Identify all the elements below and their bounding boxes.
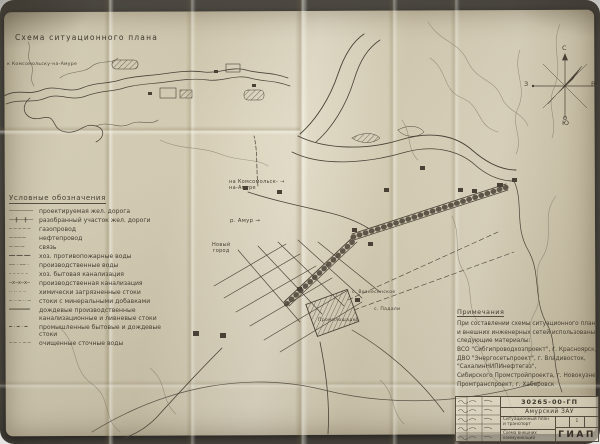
legend-symbol: ─·─·─·─ bbox=[9, 235, 39, 242]
legend-item: ·· ·· ·· ··химически загрязненные стоки bbox=[9, 289, 167, 296]
stage-sheet-cells: 1 bbox=[556, 417, 598, 428]
compass-rose bbox=[532, 54, 598, 120]
legend-label: химически загрязненные стоки bbox=[39, 289, 141, 296]
notes-block: Примечания При составлении схемы ситуаци… bbox=[457, 299, 597, 390]
legend-item: ─x─x─x─производственная канализация bbox=[9, 280, 167, 287]
inset-route-label: к Комсомольску-на-Амуре bbox=[7, 62, 77, 67]
legend-item: ─··─··─связь bbox=[9, 244, 167, 251]
signature-squiggles bbox=[456, 397, 500, 441]
organization-name: ГИАП bbox=[556, 428, 598, 441]
signature-grid bbox=[456, 397, 501, 441]
legend-symbol: ─··─··─ bbox=[9, 244, 39, 251]
legend-symbol: ── · ── · bbox=[9, 262, 39, 269]
legend-item: ─ ─ ─ ─ ─газопровод bbox=[9, 226, 167, 233]
notes-line: Промтранспроект, г. Хабаровск bbox=[457, 381, 597, 390]
legend-symbol: ─ ─ ─ ─ ─ bbox=[9, 226, 39, 233]
sheet-title: Ситуационный план и транспорт bbox=[501, 417, 555, 428]
legend-label: газопровод bbox=[39, 226, 76, 233]
legend-label: промышленные бытовые и дождевые стоки bbox=[39, 324, 167, 339]
plant-site-label: Промплощадка bbox=[318, 318, 359, 323]
legend-item: – – – – –хоз. бытовая канализация bbox=[9, 271, 167, 278]
legend-title: Условные обозначения bbox=[9, 194, 106, 204]
document-number: 30265-00-ГП bbox=[501, 397, 598, 408]
legend-label: производственная канализация bbox=[39, 280, 143, 287]
legend-label: стоки с минеральными добавками bbox=[39, 298, 150, 305]
notes-line: При составлении схемы ситуационного план… bbox=[457, 320, 597, 329]
project-name: Амурский ЗАУ bbox=[501, 408, 598, 417]
notes-line: следующие материалы: bbox=[457, 337, 597, 346]
inset-map-title: Схема ситуационного плана bbox=[15, 33, 158, 42]
legend-label: хоз. противопожарные воды bbox=[39, 253, 132, 260]
legend-symbol: – – – – – bbox=[9, 271, 39, 278]
legend-symbol: ─ ─ ·· ─ ─ bbox=[9, 340, 39, 347]
compass-east-label: В bbox=[591, 80, 595, 88]
legend-symbol: ·· ·· ·· ·· bbox=[9, 289, 39, 296]
river-label-text: р. Амур bbox=[230, 218, 253, 224]
sheet-number-cell: 1 bbox=[570, 417, 584, 427]
legend-item: ─ ·· ─ ·· ─стоки с минеральными добавкам… bbox=[9, 298, 167, 305]
sheet-subtitle: Схема внешних коммуникаций bbox=[501, 429, 555, 441]
legend-label: хоз. бытовая канализация bbox=[39, 271, 124, 278]
legend-label: очищенные сточные воды bbox=[39, 340, 123, 347]
city-label-line2: город bbox=[213, 248, 230, 254]
notes-line: ВСО "Сибгипроводхозпроект", г. Красноярс… bbox=[457, 346, 597, 355]
notes-line: Сибирского Промстройпроекта, г. Новокузн… bbox=[457, 372, 597, 381]
legend-symbol: ──╫──╫── bbox=[9, 217, 39, 224]
legend-item: ─ ─ ·· ─ ─очищенные сточные воды bbox=[9, 340, 167, 347]
notes-line: ДВО "Энергосетьпроект", г. Владивосток, bbox=[457, 355, 597, 364]
legend-label: проектируемая жел. дорога bbox=[39, 208, 130, 215]
arrow-right-icon: → bbox=[255, 218, 260, 224]
legend-symbol: ──────── bbox=[9, 208, 39, 215]
stage-cell bbox=[556, 417, 570, 427]
legend-label: дождевые производственные канализационны… bbox=[39, 307, 167, 322]
legend-label: разобранный участок жел. дороги bbox=[39, 217, 151, 224]
river-amur-label: р. Амур → bbox=[230, 218, 260, 224]
legend-symbol: ━━ ━━ ━━ bbox=[9, 253, 39, 260]
notes-title: Примечания bbox=[457, 308, 504, 317]
new-town-label: Новый город bbox=[212, 242, 230, 254]
sheets-total-cell bbox=[585, 417, 598, 427]
legend-symbol: ═══════ bbox=[9, 307, 39, 314]
legend-label: связь bbox=[39, 244, 56, 251]
arrow-right-icon: → bbox=[280, 179, 285, 185]
legend-symbol: ━ · ━ · ━ bbox=[9, 324, 39, 331]
photo-of-map: Схема ситуационного плана к Комсомольску… bbox=[0, 0, 600, 444]
legend-item: ═══════дождевые производственные канализ… bbox=[9, 307, 167, 322]
legend-label: производственные воды bbox=[39, 262, 118, 269]
legend: Условные обозначения ────────проектируем… bbox=[9, 185, 167, 349]
compass-south-label: Ю bbox=[562, 119, 569, 127]
village-label: с. Падали bbox=[374, 307, 400, 312]
village-label: с. Вознесенское bbox=[352, 290, 395, 295]
title-block: 30265-00-ГП Амурский ЗАУ Ситуационный пл… bbox=[455, 396, 599, 442]
legend-item: ━━ ━━ ━━хоз. противопожарные воды bbox=[9, 253, 167, 260]
legend-item: ──╫──╫──разобранный участок жел. дороги bbox=[9, 217, 167, 224]
legend-item: ━ · ━ · ━промышленные бытовые и дождевые… bbox=[9, 324, 167, 339]
legend-item: ─·─·─·─нефтепровод bbox=[9, 235, 167, 242]
notes-line: и внешних инженерных сетей использованы bbox=[457, 329, 597, 338]
compass-west-label: З bbox=[524, 80, 528, 88]
legend-item: ── · ── ·производственные воды bbox=[9, 262, 167, 269]
legend-label: нефтепровод bbox=[39, 235, 82, 242]
notes-line: "СахалинНИПИнефтегаз", bbox=[457, 363, 597, 372]
legend-symbol: ─ ·· ─ ·· ─ bbox=[9, 298, 39, 305]
route-label-line2: на-Амуре bbox=[229, 185, 256, 191]
route-to-komsomolsk-label: на Комсомольск-→ на-Амуре bbox=[229, 179, 285, 191]
legend-item: ────────проектируемая жел. дорога bbox=[9, 208, 167, 215]
legend-symbol: ─x─x─x─ bbox=[9, 280, 39, 287]
compass-north-label: С bbox=[562, 44, 567, 52]
